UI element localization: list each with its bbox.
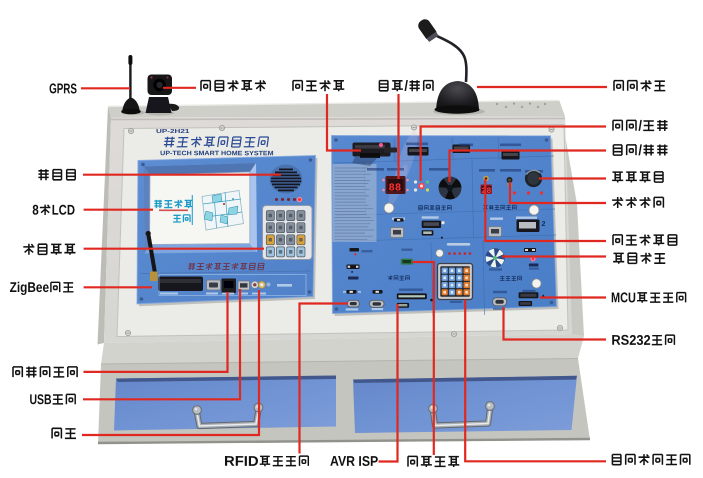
svg-text:/: /: [404, 79, 408, 95]
svg-text:8: 8: [32, 202, 39, 218]
svg-text:RS232: RS232: [611, 332, 650, 348]
svg-text:LCD: LCD: [52, 202, 75, 218]
svg-text:MCU: MCU: [611, 289, 636, 305]
svg-text:2: 2: [541, 221, 545, 228]
svg-text:USB: USB: [29, 391, 51, 407]
svg-text:ZigBee: ZigBee: [10, 279, 50, 295]
svg-text:/: /: [638, 143, 642, 159]
svg-text:RFID: RFID: [224, 453, 259, 469]
svg-text:88: 88: [388, 182, 401, 194]
svg-text:UP-2H21: UP-2H21: [156, 129, 190, 135]
svg-text:28: 28: [482, 187, 492, 196]
svg-text:GPRS: GPRS: [49, 80, 77, 96]
svg-text:UP-TECH SMART HOME SYSTEM: UP-TECH SMART HOME SYSTEM: [160, 150, 273, 157]
svg-text:AVR ISP: AVR ISP: [330, 453, 378, 469]
svg-text:/: /: [638, 119, 642, 135]
